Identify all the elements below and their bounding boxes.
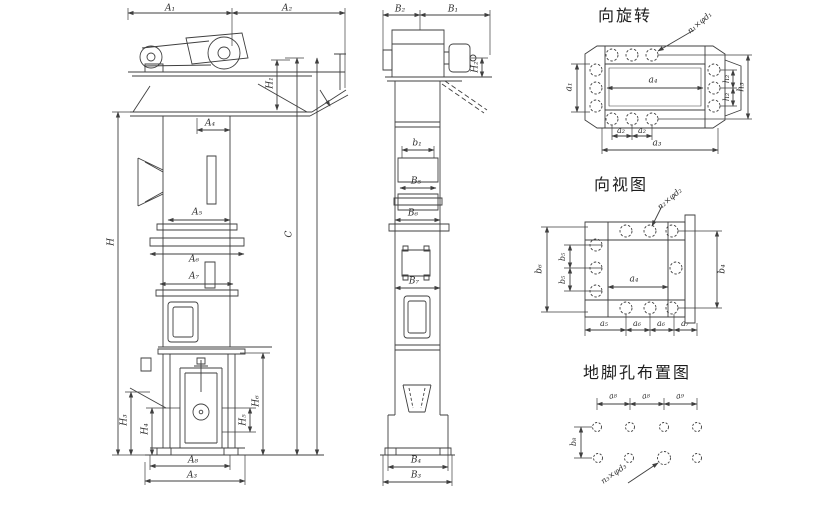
dim-label-H5: H₅: [240, 414, 249, 425]
dim-label-dir-a4: a₄: [630, 276, 639, 285]
dim-label-A7: A₇: [189, 273, 199, 282]
dim-label-H6: H₆: [253, 395, 262, 406]
dim-label-b1-small: b₁: [412, 140, 421, 149]
dim-label-H4: H₄: [142, 423, 151, 434]
dim-label-rot-h2b: h₂: [723, 93, 731, 101]
dim-label-dir-a6b: a₆: [657, 320, 665, 328]
dim-label-H2: H₂: [472, 61, 481, 72]
dim-label-A5: A₅: [192, 209, 202, 218]
dim-label-rot-a3: a₃: [653, 140, 662, 149]
dim-label-dir-a7: a₇: [681, 320, 689, 328]
dim-label-anc-b8: b₈: [570, 438, 578, 446]
front-view-drawing: [112, 8, 348, 485]
anchor-view-title: 地脚孔布置图: [583, 366, 691, 382]
dim-label-A3: A₃: [187, 472, 197, 481]
dim-label-A1: A₁: [165, 5, 175, 14]
dim-label-B1: B₁: [448, 6, 458, 15]
dim-label-H1: H₁: [267, 77, 276, 88]
dim-label-B3: B₃: [411, 472, 421, 481]
dim-label-rot-h2a: h₂: [723, 75, 731, 83]
dim-label-H3: H₃: [121, 414, 130, 425]
dim-label-B7: B₇: [409, 278, 419, 287]
dim-label-rot-a4: a₄: [649, 77, 658, 86]
dim-label-B2: B₂: [395, 6, 405, 15]
side-view-drawing: [380, 10, 492, 486]
dim-label-dir-a5: a₅: [600, 320, 608, 328]
dim-label-A4: A₄: [205, 120, 215, 129]
dim-label-H: H: [108, 238, 117, 246]
technical-drawing-page: A₁ A₂ H₁ A₄ A₅ A₆ A₇ H C H₃ H₄ H₅ H₆ A₈ …: [0, 0, 840, 505]
dim-label-rot-a2b: a₂: [638, 127, 646, 135]
dim-label-A6: A₆: [189, 256, 199, 265]
dim-label-A8: A₈: [188, 457, 198, 466]
dim-label-B4: B₄: [411, 457, 421, 466]
dim-label-rot-a1: a₁: [566, 83, 575, 92]
drawing-svg: [0, 0, 840, 505]
dim-label-rot-h3: h₃: [738, 82, 747, 91]
dim-label-dir-b5a: b₅: [559, 253, 567, 261]
dim-label-C: C: [286, 231, 295, 238]
dim-label-rot-a2a: a₂: [617, 127, 625, 135]
dim-label-dir-b6: b₆: [536, 264, 545, 273]
dim-label-B6: B₆: [408, 210, 418, 219]
direction-view-title: 向视图: [594, 178, 648, 194]
dim-label-dir-b4: b₄: [719, 264, 728, 273]
dim-label-dir-a6a: a₆: [633, 320, 641, 328]
rotation-view-title: 向旋转: [598, 9, 652, 25]
dim-label-B5: B₅: [411, 178, 421, 187]
anchor-holes-drawing: [574, 398, 702, 483]
direction-flange-drawing: [541, 206, 722, 336]
dim-label-dir-b5b: b₅: [559, 276, 567, 284]
dim-label-A2: A₂: [282, 5, 292, 14]
